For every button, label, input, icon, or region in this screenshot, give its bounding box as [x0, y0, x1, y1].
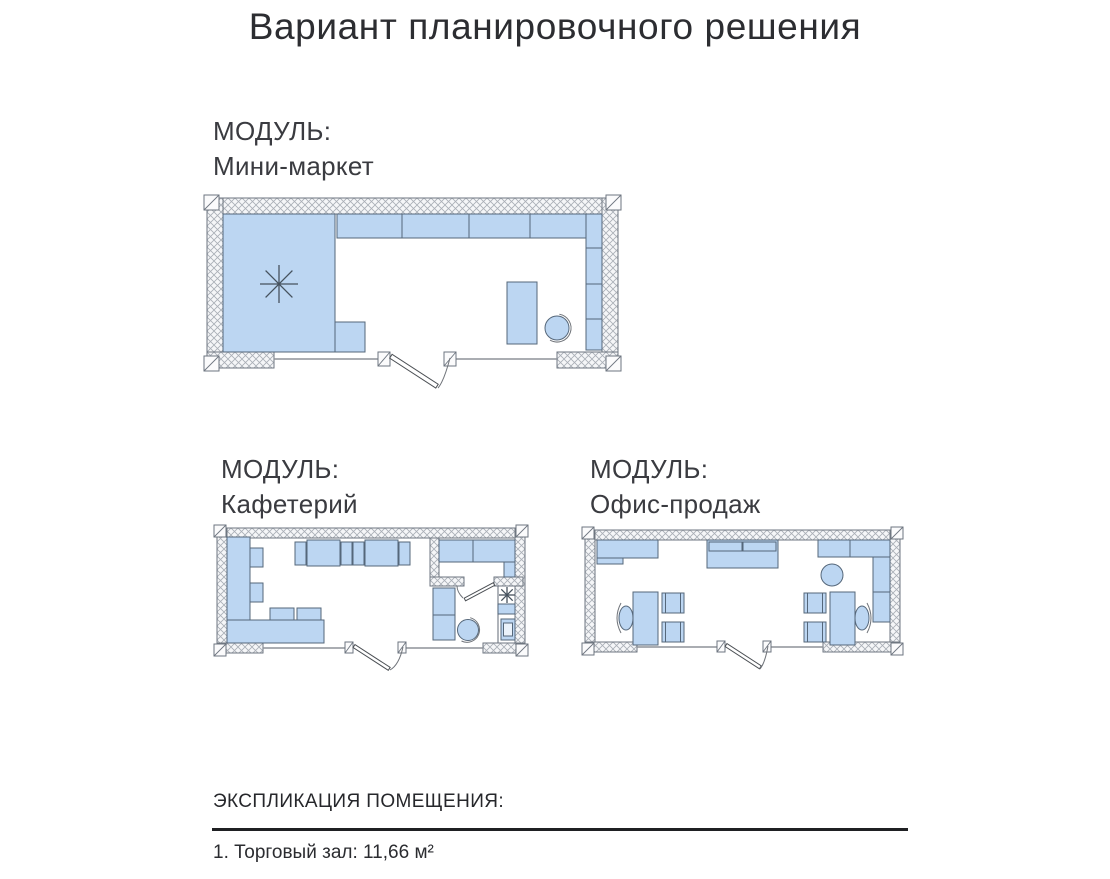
- module-prefix: МОДУЛЬ:: [221, 452, 358, 487]
- workstation-left: [617, 592, 684, 645]
- layout-sheet: Вариант планировочного решения МОДУЛЬ: М…: [0, 0, 1110, 879]
- stool: [545, 314, 571, 342]
- chair: [353, 542, 364, 565]
- sofa: [707, 540, 778, 568]
- dining-table-2: [353, 540, 410, 566]
- interior-wall: [430, 538, 439, 577]
- table: [307, 540, 340, 566]
- module-prefix: МОДУЛЬ:: [590, 452, 761, 487]
- visitor-chair: [804, 622, 826, 642]
- counter-block: [335, 322, 365, 352]
- chair: [295, 542, 306, 565]
- chair: [341, 542, 352, 565]
- chair: [297, 608, 321, 620]
- entrance-door-symbol: [345, 642, 406, 670]
- module-label-cafeteria: МОДУЛЬ: Кафетерий: [221, 452, 358, 522]
- kitchen-counter-low: [433, 588, 455, 615]
- wc-room: [498, 586, 515, 643]
- explication-heading: ЭКСПЛИКАЦИЯ ПОМЕЩЕНИЯ:: [213, 791, 504, 813]
- entrance-door-symbol: [378, 352, 456, 388]
- module-name: Мини-маркет: [213, 149, 374, 184]
- chair: [250, 548, 263, 567]
- kitchen-counter-side: [504, 562, 515, 577]
- workstation-right: [804, 592, 871, 645]
- module-name: Офис-продаж: [590, 487, 761, 522]
- page-title: Вариант планировочного решения: [0, 6, 1110, 48]
- explication-rule: [212, 828, 908, 831]
- floor-plan-sales-office: [581, 526, 904, 678]
- floor-plan-mini-market: [203, 194, 623, 396]
- round-table: [821, 564, 843, 586]
- chair: [399, 542, 410, 565]
- floor-plan-cafeteria: [213, 524, 529, 680]
- ceiling-light-symbol: [260, 265, 298, 303]
- entrance-door-symbol: [717, 641, 771, 669]
- module-label-sales-office: МОДУЛЬ: Офис-продаж: [590, 452, 761, 522]
- dining-table-1: [295, 540, 352, 566]
- wc-counter: [498, 604, 515, 614]
- stool: [458, 618, 480, 643]
- desk: [830, 592, 855, 645]
- kitchen-counter-low: [433, 615, 455, 640]
- chair: [250, 583, 263, 602]
- chair: [270, 608, 294, 620]
- visitor-chair: [804, 593, 826, 613]
- module-name: Кафетерий: [221, 487, 358, 522]
- table: [365, 540, 398, 566]
- visitor-chair: [662, 622, 684, 642]
- ceiling-light-symbol: [499, 587, 515, 603]
- module-label-mini-market: МОДУЛЬ: Мини-маркет: [213, 114, 374, 184]
- office-chair: [617, 603, 633, 633]
- wall-shelving-top: [337, 214, 587, 238]
- partition-wall-left: [430, 577, 464, 586]
- kitchen-counter-top: [439, 540, 515, 562]
- office-chair: [855, 603, 871, 633]
- cashier-desk: [507, 282, 537, 344]
- toilet-bowl: [504, 623, 513, 636]
- wall-shelving-right: [586, 214, 602, 350]
- explication-item: 1. Торговый зал: 11,66 м²: [213, 842, 434, 864]
- cabinet: [597, 540, 658, 564]
- module-prefix: МОДУЛЬ:: [213, 114, 374, 149]
- visitor-chair: [662, 593, 684, 613]
- desk: [633, 592, 658, 645]
- partition-wall-right: [494, 577, 523, 586]
